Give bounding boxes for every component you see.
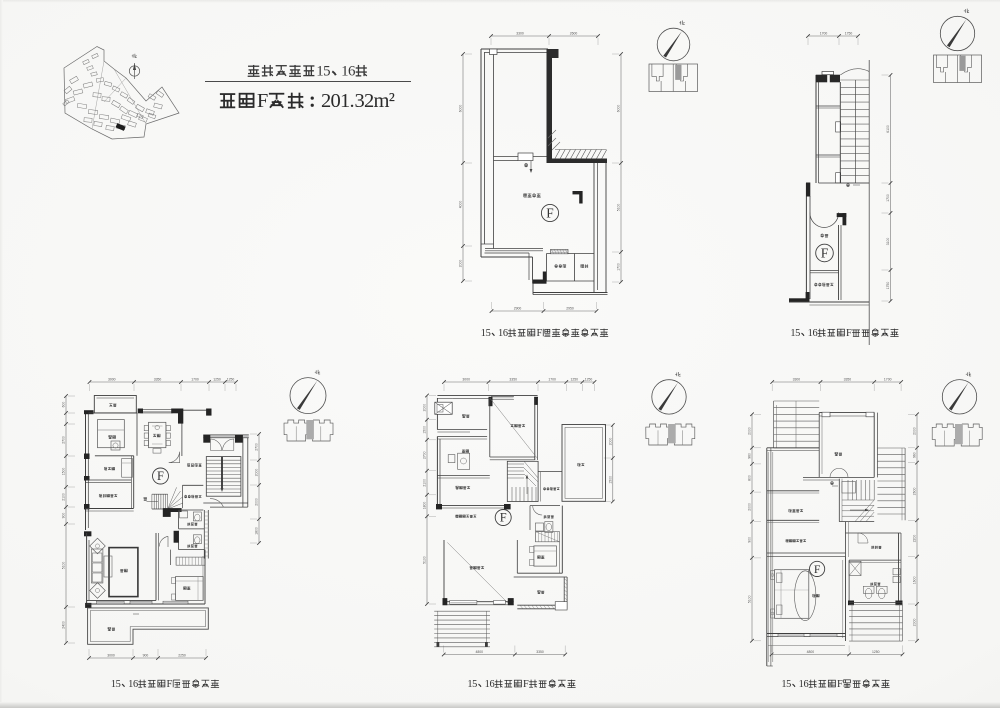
svg-text:2000: 2000 [748,503,752,511]
svg-text:1700: 1700 [191,377,199,381]
svg-text:800: 800 [748,475,752,481]
svg-text:3000: 3000 [462,377,470,381]
svg-text:F: F [167,679,173,690]
svg-text:1700: 1700 [886,194,890,202]
svg-text:2000: 2000 [608,438,612,446]
svg-text:5100: 5100 [62,562,66,570]
svg-text:5: 5 [472,679,477,690]
svg-text:3350: 3350 [154,377,162,381]
svg-text:3000: 3000 [107,653,115,657]
svg-text:1500: 1500 [423,426,427,434]
svg-text:900: 900 [143,653,149,657]
svg-text:1700: 1700 [548,377,556,381]
svg-text:5100: 5100 [617,204,621,212]
svg-text:1750: 1750 [845,31,853,35]
svg-text:5100: 5100 [423,556,427,564]
svg-text:2250: 2250 [178,653,186,657]
svg-text:F: F [814,563,821,576]
svg-text:²: ² [389,90,395,112]
svg-text:m: m [374,90,390,112]
svg-text:1750: 1750 [886,282,890,290]
svg-text:3350: 3350 [536,650,544,654]
svg-text:6: 6 [812,328,817,339]
svg-text:1250: 1250 [213,377,221,381]
svg-text:F: F [821,246,829,261]
svg-text:1700: 1700 [884,377,892,381]
svg-text:6100: 6100 [886,125,890,133]
svg-text:1700: 1700 [617,263,621,271]
svg-text:1500: 1500 [608,476,612,484]
svg-text:3350: 3350 [509,377,517,381]
svg-text:1250: 1250 [571,377,579,381]
svg-text:1600: 1600 [913,576,917,584]
svg-text:6: 6 [489,679,494,690]
svg-text:5: 5 [116,679,121,690]
svg-text:1700: 1700 [820,31,828,35]
svg-text:6000: 6000 [617,105,621,113]
svg-text:2000: 2000 [459,260,463,268]
svg-text:2400: 2400 [62,621,66,629]
svg-text:1800: 1800 [255,527,259,535]
svg-text:600: 600 [62,402,66,408]
svg-text:2000: 2000 [255,469,259,477]
svg-text:6000: 6000 [459,105,463,113]
svg-text:2700: 2700 [423,451,427,459]
svg-text:6: 6 [803,679,808,690]
svg-text:2600: 2600 [570,31,578,35]
svg-text:2900: 2900 [514,306,522,310]
svg-text:3300: 3300 [516,31,524,35]
svg-text:2700: 2700 [62,436,66,444]
svg-text:2000: 2000 [255,498,259,506]
svg-text:F: F [837,679,843,690]
svg-text:4800: 4800 [476,650,484,654]
svg-text:6: 6 [348,64,355,80]
svg-text:2000: 2000 [913,619,917,627]
svg-text:5100: 5100 [748,595,752,603]
svg-text:3100: 3100 [886,238,890,246]
svg-text:4000: 4000 [459,201,463,209]
svg-text:5: 5 [323,64,330,80]
svg-text:F: F [257,90,268,112]
svg-text:4800: 4800 [807,650,815,654]
svg-text:5: 5 [795,328,800,339]
svg-text:3000: 3000 [108,377,116,381]
svg-text:3300: 3300 [793,377,801,381]
svg-text:F: F [546,206,553,221]
svg-text:2700: 2700 [255,443,259,451]
svg-text:900: 900 [748,537,752,543]
svg-text:2100: 2100 [423,479,427,487]
svg-text:F: F [846,328,852,339]
svg-text:900: 900 [62,513,66,519]
svg-text:3350: 3350 [844,377,852,381]
svg-text:5: 5 [486,328,491,339]
svg-text:2600: 2600 [913,488,917,496]
svg-text:F: F [500,511,507,525]
svg-text:F: F [536,328,542,339]
svg-text:2100: 2100 [62,493,66,501]
svg-text:1500: 1500 [62,468,66,476]
svg-text:2000: 2000 [748,427,752,435]
svg-text:2000: 2000 [423,404,427,412]
svg-text:960: 960 [748,453,752,459]
svg-text:6: 6 [503,328,508,339]
svg-text:1800: 1800 [423,502,427,510]
svg-text:5: 5 [786,679,791,690]
svg-text:1250: 1250 [585,377,593,381]
svg-text:F: F [157,469,164,483]
svg-text:2000: 2000 [913,427,917,435]
svg-text:1250: 1250 [227,377,235,381]
svg-text:1250: 1250 [872,650,880,654]
svg-text:2950: 2950 [566,306,574,310]
svg-text:F: F [523,679,529,690]
svg-text:2200: 2200 [913,535,917,543]
svg-text:6: 6 [133,679,138,690]
svg-text:960: 960 [913,452,917,458]
